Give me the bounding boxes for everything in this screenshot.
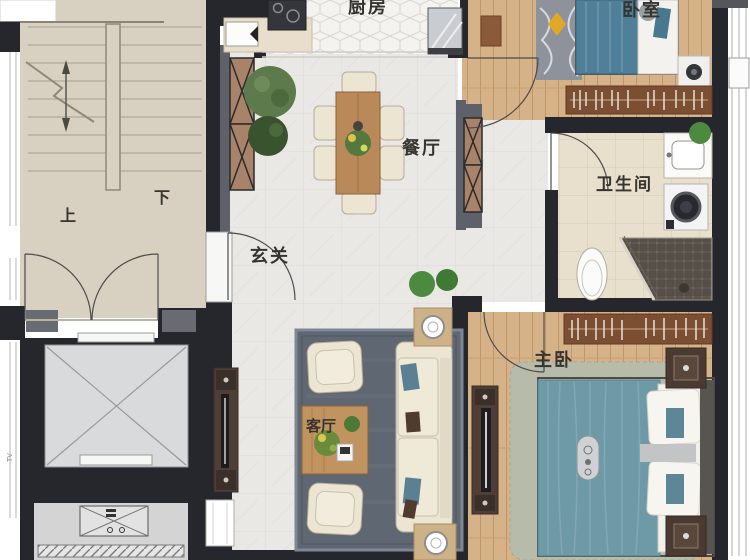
stairs-down-label: 下 (154, 190, 170, 207)
master-tv-console (472, 386, 498, 514)
master-bedroom-label: 主卧 (534, 349, 574, 370)
accent-pillow (666, 474, 684, 504)
coffee-table: 客厅 (302, 406, 368, 474)
ac-unit (729, 58, 749, 88)
stairs-up-label: 上 (60, 207, 76, 225)
elevator-door-sill (78, 333, 154, 342)
nightstand (666, 516, 706, 556)
dining-chair (380, 146, 404, 180)
entry-label: 玄关 (250, 245, 290, 266)
bathroom-label: 卫生间 (596, 174, 653, 194)
elevator-block (20, 333, 218, 560)
nightstand (666, 348, 706, 388)
armchair (307, 341, 364, 394)
lamp-icon (422, 316, 444, 338)
shaft2-hatch-band (38, 545, 184, 557)
dining-chair (314, 146, 338, 180)
table-bowl (353, 121, 363, 131)
tv-wall-label: TV (7, 453, 14, 462)
toilet (577, 248, 607, 300)
plant (344, 416, 360, 432)
exterior-corner (0, 0, 56, 22)
dining-chair (342, 192, 376, 214)
headboard-cushion (640, 444, 696, 462)
elevator-inner-sill (80, 455, 152, 465)
bedroom-label: 卧室 (622, 0, 662, 20)
sofa (396, 342, 452, 532)
accent-pillow (666, 408, 684, 438)
plant (248, 116, 288, 156)
dining-chair (342, 72, 376, 94)
dining-chair (380, 106, 404, 140)
side-table (414, 308, 452, 346)
light-well-window (206, 500, 234, 546)
bed-runner-detail (577, 436, 599, 480)
lamp-icon (425, 532, 447, 554)
faucet-icon (667, 153, 672, 158)
bench (481, 16, 501, 46)
armchair (307, 483, 364, 536)
sink-basin (672, 141, 704, 169)
dining-chair (314, 106, 338, 140)
living-label: 客厅 (305, 417, 336, 435)
floor-plan: 上 下 TV (0, 0, 750, 560)
side-table (414, 524, 456, 560)
table-plant (345, 130, 371, 156)
master-wardrobe (564, 314, 712, 344)
pillow (405, 412, 420, 433)
plant (689, 122, 711, 144)
drain-icon (679, 283, 689, 293)
dining-label: 餐厅 (401, 137, 442, 158)
kitchen-label: 厨房 (348, 0, 388, 17)
plant (436, 269, 458, 291)
plant (244, 66, 296, 118)
plant (409, 271, 435, 297)
living-tv-console (214, 368, 238, 492)
wardrobe (566, 86, 712, 114)
left-window-lines (10, 52, 16, 518)
washing-machine (664, 184, 708, 230)
sofa-back (440, 358, 452, 518)
stair-stringer (106, 24, 120, 190)
balcony-rail-lines (732, 8, 746, 556)
floor-plan-canvas: 上 下 TV (0, 0, 750, 560)
